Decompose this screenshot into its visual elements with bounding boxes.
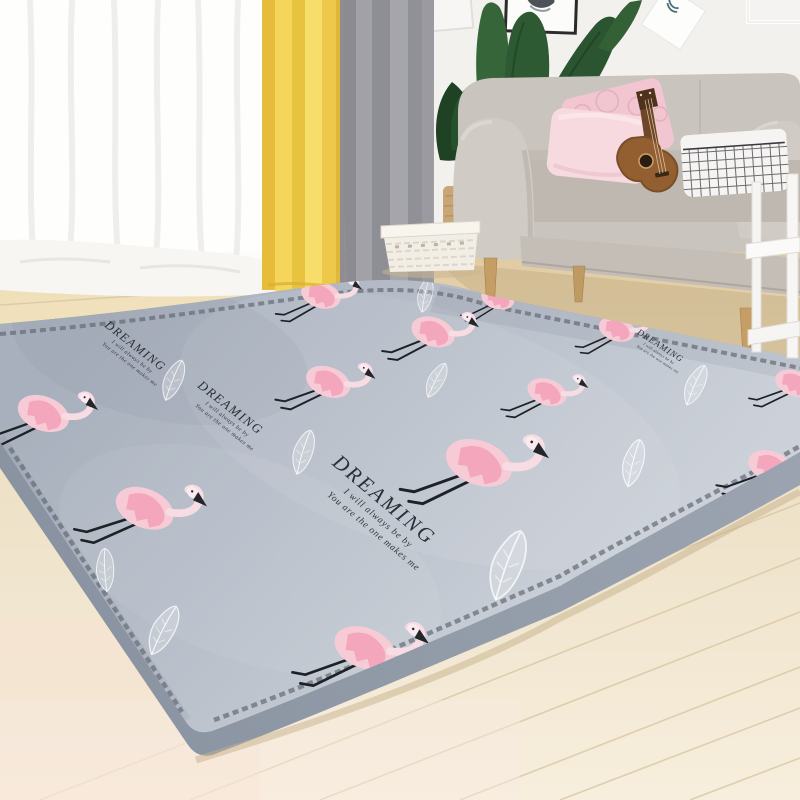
living-room-photo: DREAMING I will always be by You are the… [0,0,800,800]
yellow-curtain [262,0,344,296]
grid-pillow [680,128,790,197]
picture-frame-right [748,0,800,22]
sheer-curtain [0,0,295,296]
wicker-basket [381,221,482,278]
